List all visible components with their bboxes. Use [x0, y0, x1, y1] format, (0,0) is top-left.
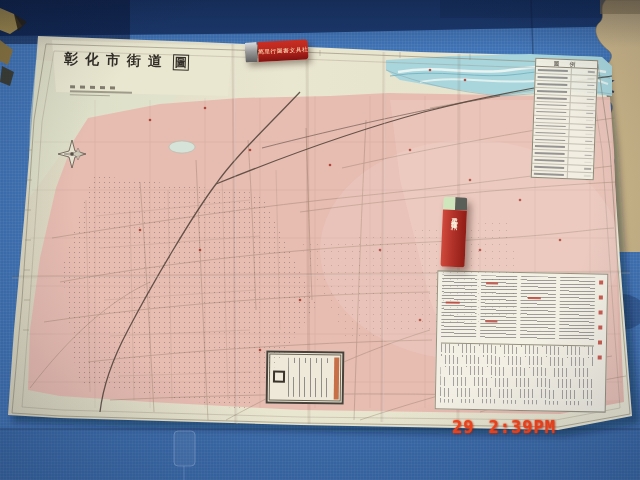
lighter-body: 萬里行全套傳訊 [440, 209, 466, 267]
photo-scene: 彰化市街道圖 圖 例 [0, 0, 640, 480]
timestamp-day: 29 [452, 417, 474, 438]
index-name-list [440, 342, 594, 405]
map-title: 彰化市街道圖 [64, 48, 190, 71]
red-heading-mark [528, 297, 541, 299]
timestamp-time: 2:39PM [488, 417, 555, 438]
red-lighter-vertical: 萬里行全套傳訊 [440, 197, 467, 268]
red-number [598, 355, 602, 359]
red-number [598, 325, 602, 329]
red-lighter-horizontal: 萬里行圖書文具社 [245, 39, 309, 62]
lighter-cap-green [443, 197, 456, 211]
map-legend: 圖 例 [531, 58, 599, 180]
camera-timestamp: 292:39PM [452, 417, 556, 438]
red-number [598, 340, 602, 344]
lighter-metal-head [245, 42, 259, 63]
red-number [599, 295, 603, 299]
colophon-text-columns [288, 358, 331, 398]
mat-corner-tabs [0, 8, 27, 86]
map-title-text: 彰化市街道 [64, 50, 169, 69]
lighter-cap [443, 197, 468, 211]
map-title-seal-char: 圖 [173, 54, 189, 70]
red-number [599, 280, 603, 284]
colophon-red-strip [334, 357, 340, 399]
lighter-cap-wheel [455, 197, 468, 211]
scale-bar [70, 85, 116, 89]
map-scale-note [70, 85, 132, 97]
lighter-brand-text: 萬里行圖書文具社 [258, 45, 309, 56]
map-pond [169, 141, 195, 153]
index-column [559, 277, 595, 342]
lighter-body: 萬里行圖書文具社 [258, 39, 309, 62]
scale-text-line [70, 90, 132, 93]
legend-row [532, 171, 593, 179]
index-page-numbers [595, 280, 605, 370]
publisher-seal [273, 371, 285, 383]
red-number [599, 310, 603, 314]
lighter-brand-text: 萬里行全套傳訊 [446, 212, 460, 267]
